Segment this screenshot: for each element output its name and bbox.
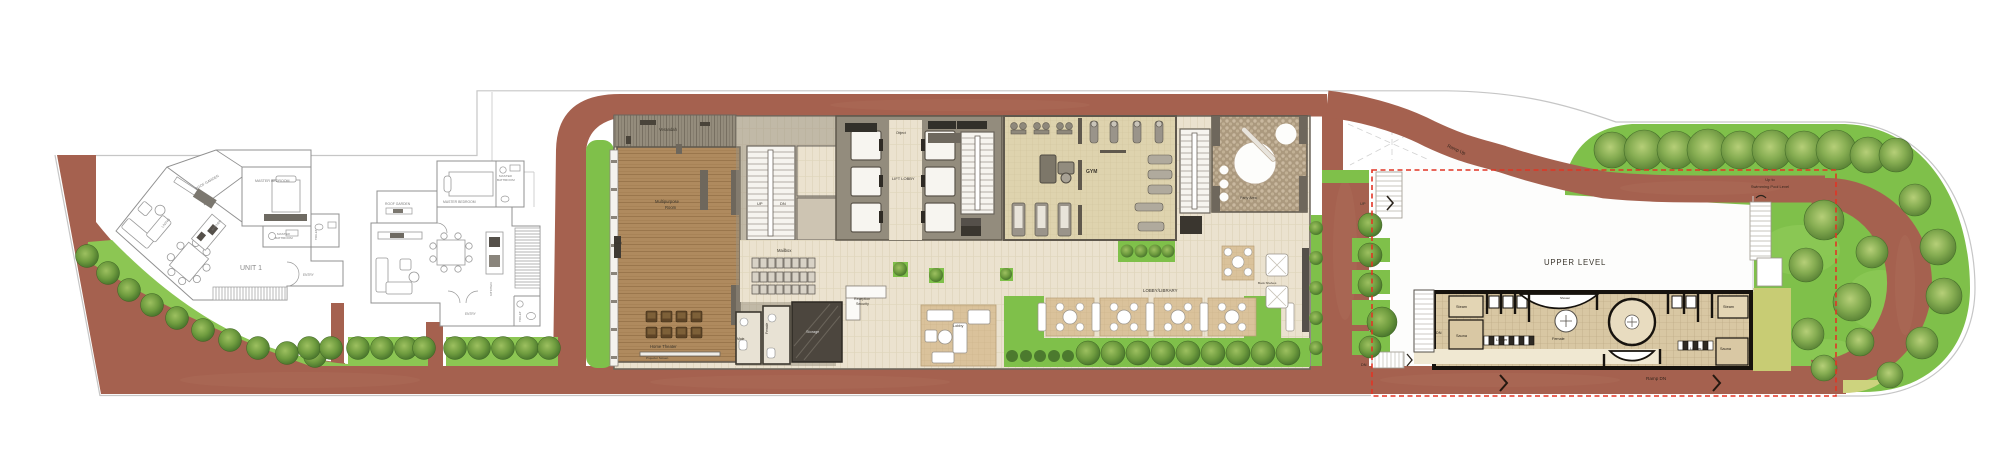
svg-text:Shower: Shower (1560, 296, 1570, 300)
svg-text:Storage: Storage (806, 330, 819, 334)
svg-text:Female: Female (1552, 337, 1565, 341)
svg-text:Multipurpose: Multipurpose (655, 199, 680, 204)
svg-text:Female: Female (765, 323, 769, 334)
svg-text:Locker: Locker (1690, 347, 1702, 351)
svg-text:UP: UP (757, 201, 763, 206)
svg-text:Security: Security (856, 302, 869, 306)
svg-text:Locker: Locker (1496, 338, 1508, 342)
svg-text:UP: UP (1360, 201, 1366, 206)
svg-text:ENTRY: ENTRY (465, 312, 477, 316)
svg-text:TOILET: TOILET (518, 311, 522, 322)
svg-text:Male: Male (737, 337, 744, 341)
svg-text:Ramp DN: Ramp DN (1646, 376, 1666, 381)
svg-text:Male: Male (1625, 343, 1633, 347)
svg-text:Home Theater: Home Theater (650, 344, 677, 349)
svg-text:Book Shelves: Book Shelves (1258, 281, 1277, 285)
svg-text:DN: DN (1361, 363, 1367, 367)
svg-text:Sauna: Sauna (1720, 347, 1732, 351)
svg-text:Steam: Steam (1723, 305, 1734, 309)
svg-text:DN: DN (1436, 331, 1442, 335)
svg-text:Mailbox: Mailbox (777, 248, 792, 253)
svg-text:Steam: Steam (1456, 305, 1467, 309)
svg-text:Sauna: Sauna (1456, 334, 1468, 338)
svg-text:Board: Board (614, 241, 622, 245)
svg-text:Verandah: Verandah (659, 127, 678, 132)
svg-text:MASTER BEDROOM: MASTER BEDROOM (443, 200, 476, 204)
svg-text:BATHROOM: BATHROOM (275, 236, 293, 240)
svg-text:Reception: Reception (854, 297, 870, 301)
svg-text:BATHROOM: BATHROOM (497, 178, 515, 182)
svg-text:DN: DN (780, 201, 786, 206)
svg-text:Swimming Pool Level: Swimming Pool Level (1751, 184, 1789, 189)
svg-text:Object: Object (896, 131, 906, 135)
svg-text:Up to: Up to (1765, 177, 1775, 182)
svg-text:Room: Room (665, 205, 677, 210)
svg-text:Lobby: Lobby (953, 324, 963, 328)
svg-text:GYM: GYM (1086, 169, 1097, 175)
svg-text:Projector Screen: Projector Screen (646, 356, 669, 360)
svg-text:KITCHEN: KITCHEN (489, 282, 493, 296)
svg-text:ENTRY: ENTRY (303, 273, 315, 277)
svg-text:UPPER LEVEL: UPPER LEVEL (1544, 258, 1606, 267)
svg-text:Party Area: Party Area (1240, 196, 1257, 200)
svg-text:ROOF GARDEN: ROOF GARDEN (385, 202, 411, 206)
svg-text:UNIT 1: UNIT 1 (240, 265, 262, 272)
svg-text:LIFT LOBBY: LIFT LOBBY (892, 176, 915, 181)
svg-text:MASTER BEDROOM: MASTER BEDROOM (255, 179, 290, 183)
svg-text:TOILET: TOILET (314, 229, 318, 240)
svg-text:LOBBY/LIBRARY: LOBBY/LIBRARY (1143, 288, 1178, 293)
